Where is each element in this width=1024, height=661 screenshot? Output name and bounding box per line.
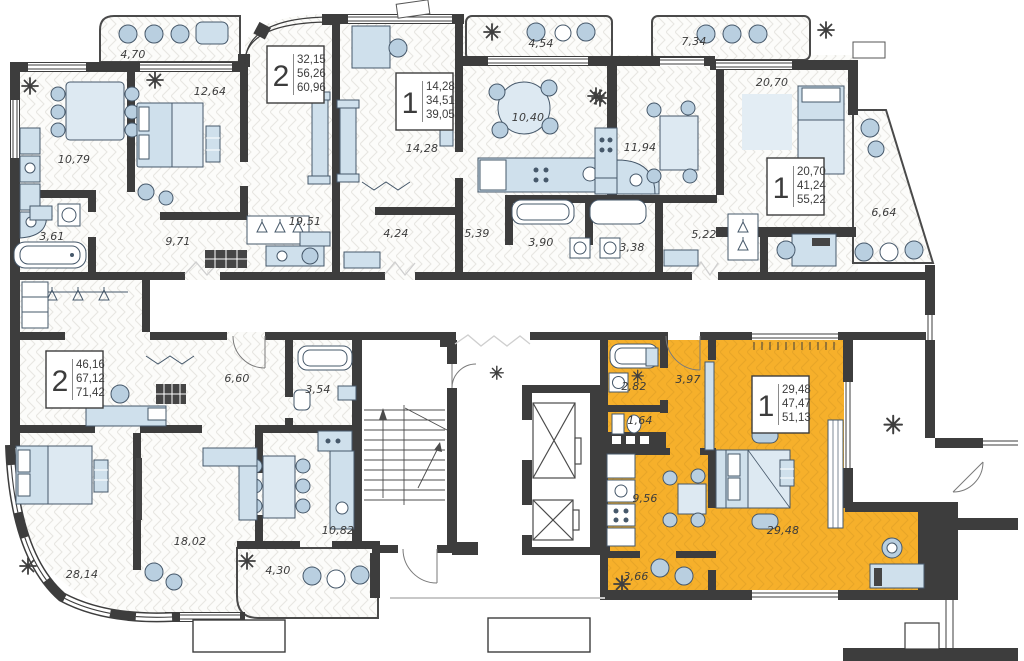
badge-b-area-total: 39,05 <box>426 109 455 121</box>
apartment-badge-b[interactable]: 1 14,28 34,51 39,05 <box>396 73 455 130</box>
badge-b-rooms: 1 <box>402 87 419 120</box>
room-label-bath-a: 3,61 <box>39 230 64 243</box>
room-label-hall-b: 4,24 <box>383 227 408 240</box>
apartment-badge-a[interactable]: 2 32,15 56,26 60,96 <box>267 46 326 103</box>
badge-c-area-living: 20,70 <box>797 166 826 178</box>
room-label-kitchen-a: 10,79 <box>58 153 91 166</box>
room-label-living-a: 19,51 <box>289 215 322 228</box>
room-label-bath-b: 3,90 <box>528 236 553 249</box>
room-label-kitchen-c: 11,94 <box>624 141 657 154</box>
room-label-living-b: 14,28 <box>406 142 439 155</box>
room-label-bedroom-d: 28,14 <box>66 568 99 581</box>
floor-plan-svg: 4,70 12,64 10,79 3,61 9,71 19,51 14,28 4… <box>0 0 1024 661</box>
apartment-badge-e[interactable]: 1 29,48 47,47 51,13 <box>752 376 811 433</box>
badge-d-area-total: 71,42 <box>76 387 105 399</box>
room-label-bedroom-a: 12,64 <box>194 85 227 98</box>
badge-a-area-total: 60,96 <box>297 82 326 94</box>
room-label-balcony-b: 4,54 <box>528 37 553 50</box>
badge-a-rooms: 2 <box>273 60 290 93</box>
badge-e-area-base: 47,47 <box>782 398 811 410</box>
apartment-badge-d[interactable]: 2 46,16 67,12 71,42 <box>46 351 105 408</box>
badge-b-area-living: 14,28 <box>426 81 455 93</box>
room-label-hall-d: 6,60 <box>224 372 249 385</box>
room-label-entry-e: 3,66 <box>623 570 648 583</box>
badge-d-rooms: 2 <box>52 365 69 398</box>
badge-e-area-total: 51,13 <box>782 412 811 424</box>
room-label-hall-c: 5,22 <box>691 228 716 241</box>
badge-a-area-living: 32,15 <box>297 54 326 66</box>
badge-c-area-total: 55,22 <box>797 194 826 206</box>
room-label-living-e: 29,48 <box>767 524 800 537</box>
room-label-kitchen-d: 10,82 <box>322 524 355 537</box>
room-label-kitchen-e: 9,56 <box>632 492 657 505</box>
badge-c-rooms: 1 <box>773 172 790 205</box>
room-label-kitchen-b: 10,40 <box>512 111 545 124</box>
room-label-bath-d: 3,54 <box>305 383 330 396</box>
room-label-hall-b2: 5,39 <box>464 227 489 240</box>
room-label-bath-c: 3,38 <box>619 241 644 254</box>
room-label-hall-e: 3,97 <box>675 373 700 386</box>
floor-plan-page: 4,70 12,64 10,79 3,61 9,71 19,51 14,28 4… <box>0 0 1024 661</box>
room-label-living-c: 20,70 <box>756 76 789 89</box>
apartment-badge-c[interactable]: 1 20,70 41,24 55,22 <box>767 158 826 215</box>
badge-d-area-base: 67,12 <box>76 373 105 385</box>
badge-b-area-base: 34,51 <box>426 95 455 107</box>
badge-e-rooms: 1 <box>758 390 775 423</box>
badge-d-area-living: 46,16 <box>76 359 105 371</box>
badge-a-area-base: 56,26 <box>297 68 326 80</box>
room-label-balcony-d: 4,30 <box>265 564 290 577</box>
room-label-hall-a: 9,71 <box>165 235 190 248</box>
room-label-balcony-c2: 6,64 <box>871 206 896 219</box>
room-label-living-d: 18,02 <box>174 535 207 548</box>
badge-c-area-base: 41,24 <box>797 180 826 192</box>
room-label-balcony-c: 7,34 <box>681 35 706 48</box>
room-label-balcony-a: 4,70 <box>120 48 145 61</box>
room-label-wc-e: 1,64 <box>627 414 652 427</box>
stairs <box>364 405 447 505</box>
badge-e-area-living: 29,48 <box>782 384 811 396</box>
elevators <box>533 403 581 540</box>
room-label-bath-e: 2,82 <box>621 380 646 393</box>
